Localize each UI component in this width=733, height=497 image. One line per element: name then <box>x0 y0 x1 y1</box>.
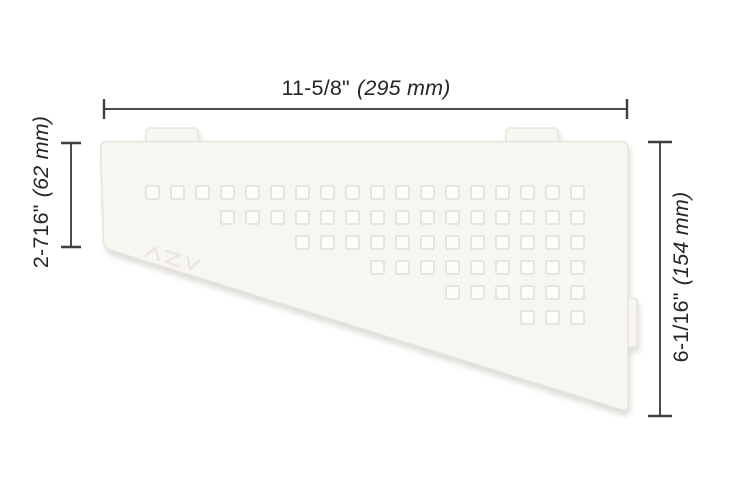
right-dimension-label: 6-1/16"(154 mm) <box>668 192 694 363</box>
perforation-square <box>296 211 309 224</box>
top-dimension-label: 11-5/8"(295 mm) <box>166 75 566 101</box>
perforation-square <box>571 286 584 299</box>
perforation-square <box>221 186 234 199</box>
perforation-square <box>246 211 259 224</box>
perforation-square <box>421 236 434 249</box>
perforation-square <box>446 186 459 199</box>
perforation-square <box>446 286 459 299</box>
perforation-square <box>146 186 159 199</box>
perforation-square <box>196 186 209 199</box>
perforation-square <box>571 261 584 274</box>
left-dimension-metric: (62 mm) <box>29 116 53 197</box>
perforation-square <box>246 186 259 199</box>
perforation-square <box>496 286 509 299</box>
perforation-square <box>346 211 359 224</box>
right-dimension-inches: 6-1/16" <box>669 292 693 362</box>
perforation-square <box>221 211 234 224</box>
perforation-square <box>521 261 534 274</box>
perforation-square <box>446 211 459 224</box>
perforation-square <box>471 211 484 224</box>
perforation-square <box>321 186 334 199</box>
perforation-square <box>346 186 359 199</box>
perforation-square <box>571 186 584 199</box>
perforation-square <box>371 186 384 199</box>
perforation-square <box>446 236 459 249</box>
perforation-square <box>496 236 509 249</box>
perforation-square <box>546 211 559 224</box>
perforation-square <box>446 261 459 274</box>
perforation-square <box>471 186 484 199</box>
perforation-square <box>496 211 509 224</box>
perforation-square <box>371 261 384 274</box>
left-dimension <box>61 143 81 247</box>
perforation-square <box>271 211 284 224</box>
shelf <box>101 128 637 410</box>
perforation-square <box>571 236 584 249</box>
perforation-square <box>571 211 584 224</box>
perforation-square <box>371 236 384 249</box>
perforation-square <box>421 261 434 274</box>
perforation-square <box>421 186 434 199</box>
perforation-square <box>296 236 309 249</box>
perforation-square <box>546 311 559 324</box>
perforation-square <box>396 236 409 249</box>
perforation-square <box>571 311 584 324</box>
perforation-square <box>521 311 534 324</box>
shelf-outline <box>101 142 628 411</box>
perforation-square <box>521 286 534 299</box>
perforation-square <box>396 186 409 199</box>
perforation-square <box>546 286 559 299</box>
left-dimension-label: 2-716"(62 mm) <box>28 116 54 268</box>
right-dimension-metric: (154 mm) <box>669 192 693 286</box>
perforation-square <box>321 236 334 249</box>
perforation-square <box>471 261 484 274</box>
perforation-square <box>171 186 184 199</box>
perforation-square <box>471 236 484 249</box>
perforation-square <box>546 261 559 274</box>
perforation-square <box>421 211 434 224</box>
left-dimension-inches: 2-716" <box>29 204 53 268</box>
perforation-square <box>546 186 559 199</box>
perforation-square <box>346 236 359 249</box>
perforation-square <box>321 211 334 224</box>
perforation-square <box>521 211 534 224</box>
perforation-square <box>521 186 534 199</box>
top-dimension <box>104 99 627 119</box>
perforation-square <box>546 236 559 249</box>
perforation-square <box>521 236 534 249</box>
perforation-square <box>371 211 384 224</box>
perforation-square <box>396 211 409 224</box>
perforation-square <box>496 186 509 199</box>
perforation-square <box>396 261 409 274</box>
perforation-square <box>496 261 509 274</box>
perforation-square <box>296 186 309 199</box>
diagram-canvas: 11-5/8"(295 mm) 2-716"(62 mm) 6-1/16"(15… <box>0 0 733 497</box>
top-dimension-inches: 11-5/8" <box>281 76 349 100</box>
perforation-square <box>271 186 284 199</box>
perforation-square <box>471 286 484 299</box>
top-dimension-metric: (295 mm) <box>357 76 451 100</box>
